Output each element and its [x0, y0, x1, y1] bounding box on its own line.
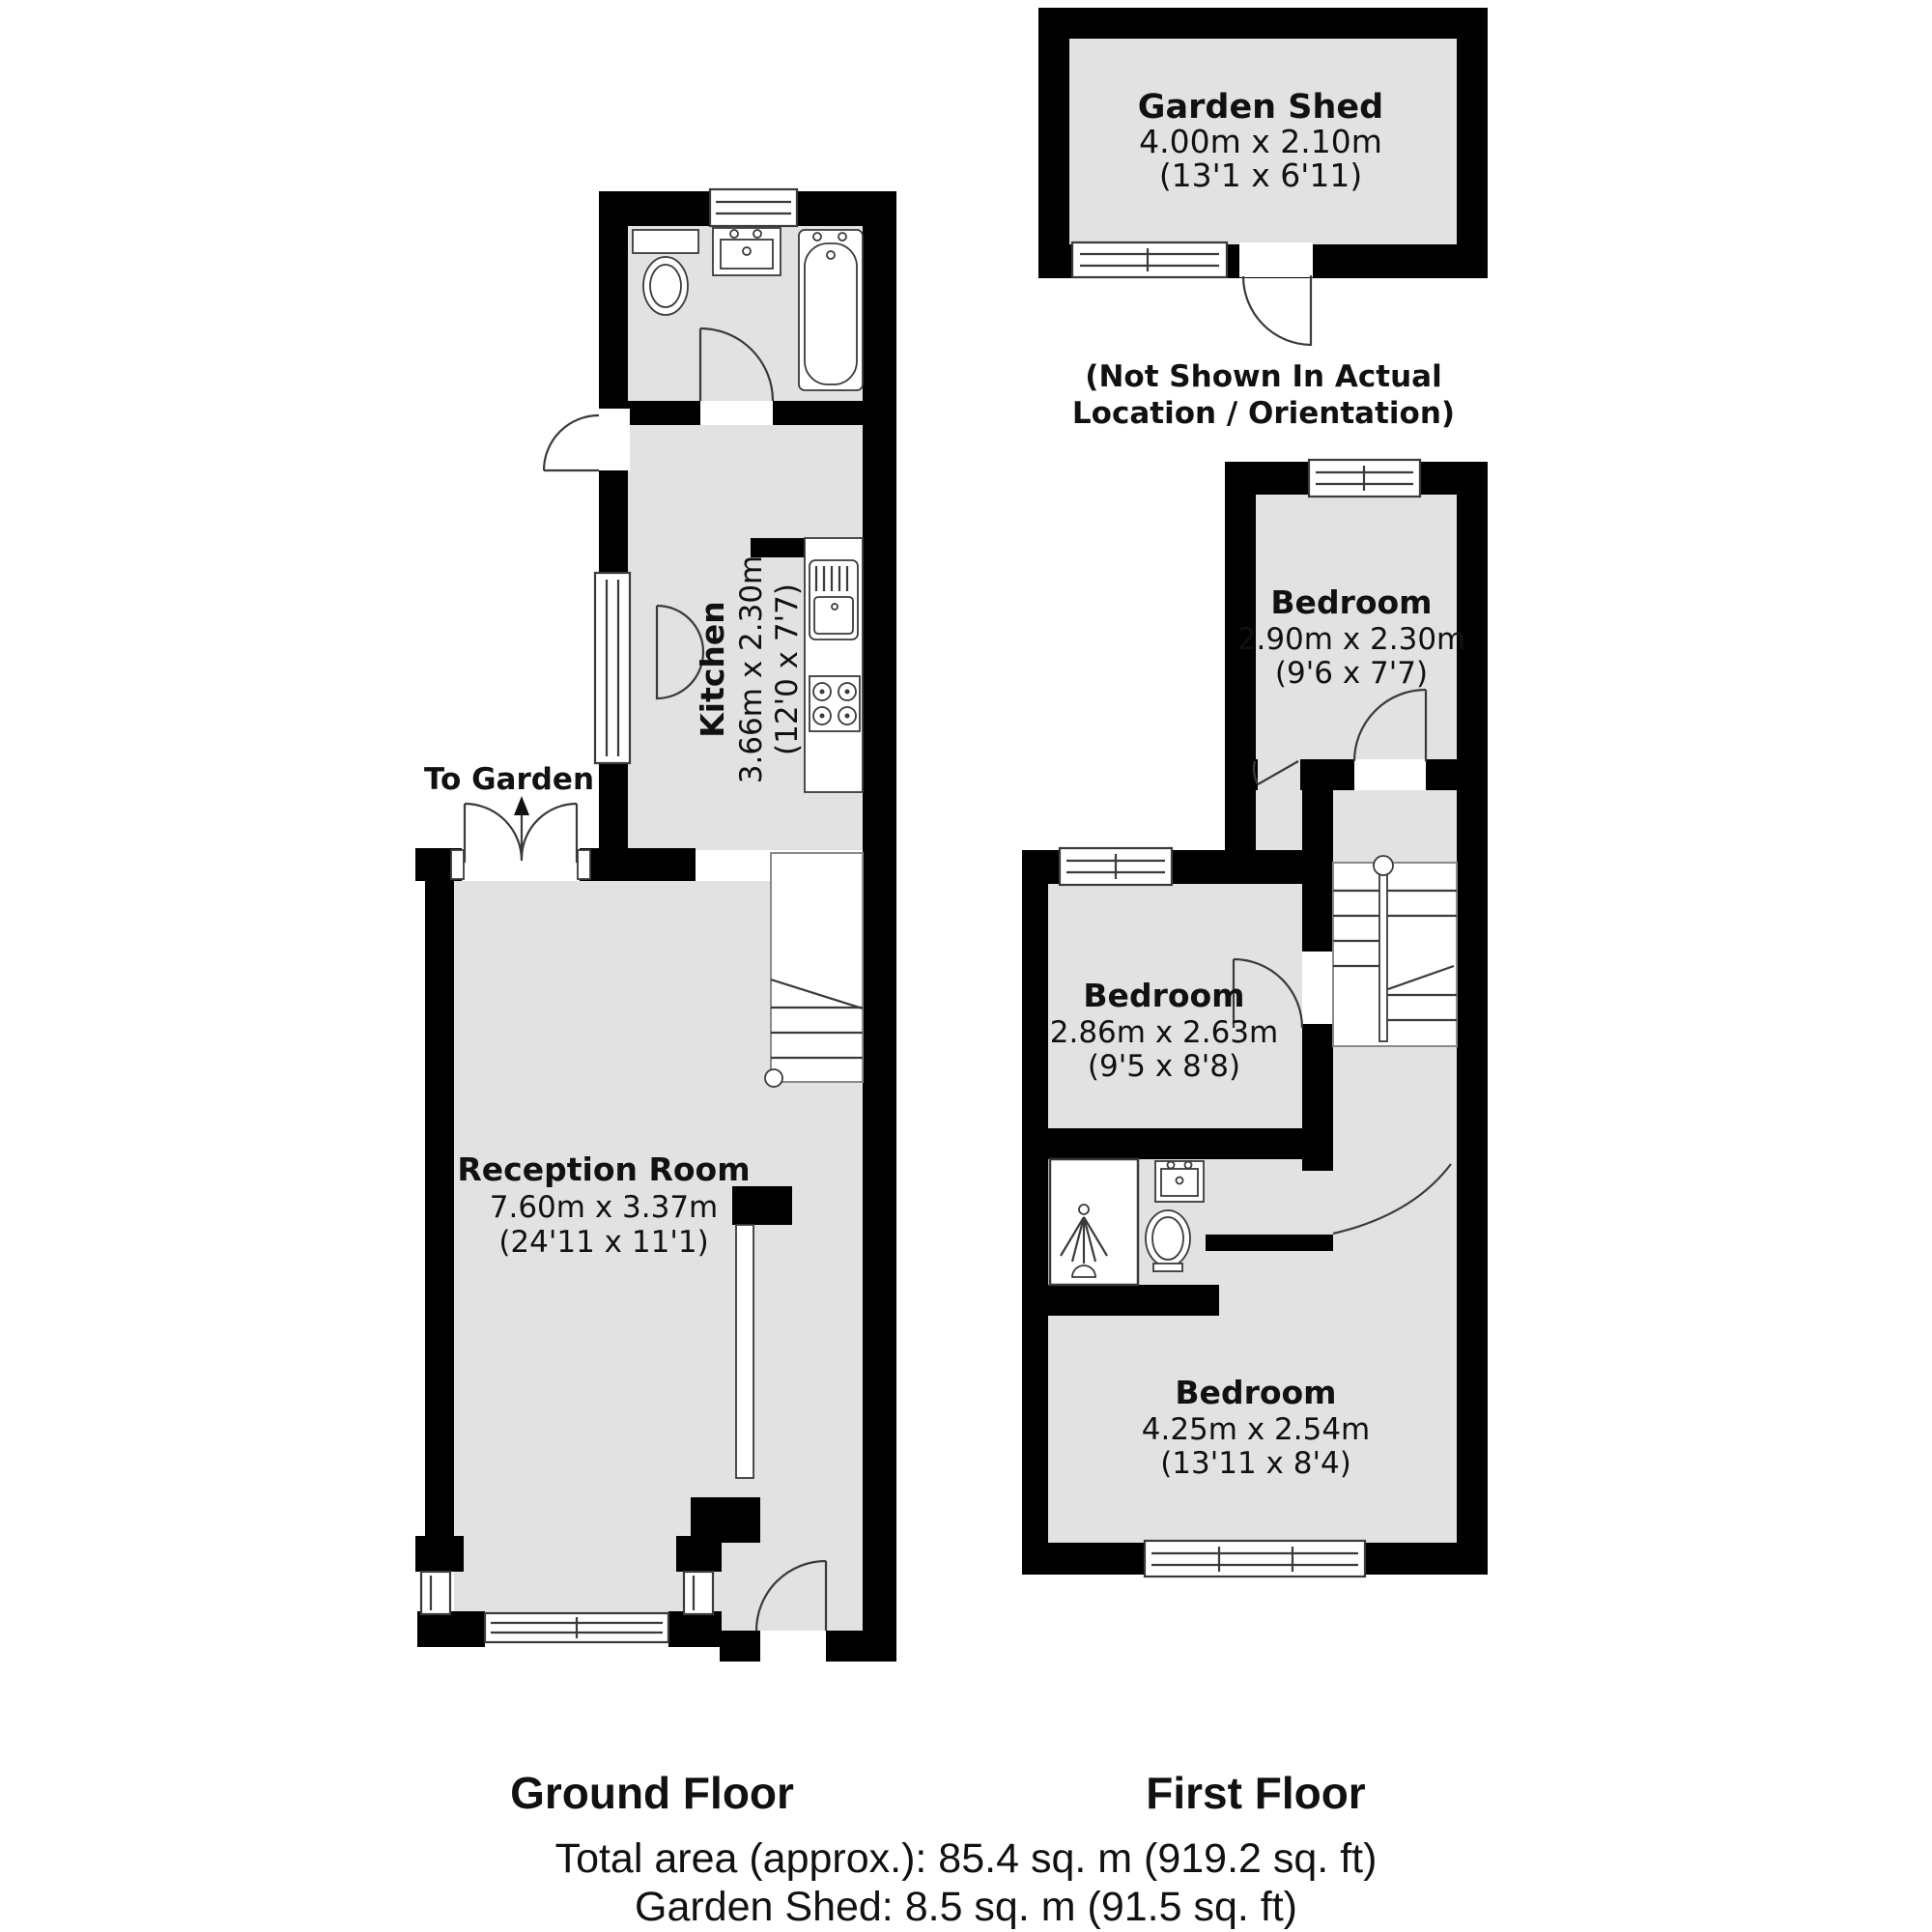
shed-door-icon — [1239, 242, 1313, 346]
footer: Ground Floor First Floor Total area (app… — [510, 1768, 1377, 1930]
shower-icon — [1050, 1159, 1138, 1285]
bedroom-top-dims-imperial: (9'6 x 7'7) — [1275, 656, 1428, 691]
shed-window-icon — [1072, 242, 1227, 277]
to-garden-label: To Garden — [424, 762, 594, 797]
first-floor-plan: Bedroom 2.90m x 2.30m (9'6 x 7'7) Bedroo… — [1022, 460, 1488, 1577]
ground-stairs-icon — [765, 853, 863, 1087]
kitchen-name-label: Kitchen — [694, 601, 731, 738]
bedroom-top-name: Bedroom — [1270, 583, 1432, 621]
bay-window-front-icon — [485, 1613, 668, 1642]
bedroom-bottom-dims-metric: 4.25m x 2.54m — [1142, 1412, 1371, 1447]
reception-dims-imperial: (24'11 x 11'1) — [498, 1225, 708, 1260]
bedroom-bottom-label: Bedroom 4.25m x 2.54m (13'11 x 8'4) — [1142, 1374, 1371, 1481]
floorplan-page: Garden Shed 4.00m x 2.10m (13'1 x 6'11) … — [0, 0, 1932, 1932]
shed-note-line2: Location / Orientation) — [1072, 396, 1455, 431]
total-area-text: Total area (approx.): 85.4 sq. m (919.2 … — [555, 1835, 1378, 1882]
shed-note: (Not Shown In Actual Location / Orientat… — [1072, 359, 1455, 431]
kitchen-sink-icon — [810, 560, 858, 639]
bedroom-bottom-name: Bedroom — [1175, 1374, 1336, 1411]
shed-note-line1: (Not Shown In Actual — [1085, 359, 1441, 394]
bathtub-icon — [799, 230, 863, 390]
bedroom-bottom-dims-imperial: (13'11 x 8'4) — [1160, 1446, 1351, 1481]
bathroom-window-icon — [710, 189, 797, 226]
reception-dims-metric: 7.60m x 3.37m — [490, 1190, 719, 1225]
bathroom-sink-icon — [713, 228, 781, 275]
bay-window-right-icon — [684, 1572, 713, 1614]
first-floor-stairs-icon — [1333, 856, 1457, 1046]
ground-floor-plan: To Garden Kitchen 3.66m x 2.30m (12'0 x … — [415, 189, 896, 1662]
ensuite-sink-icon — [1155, 1161, 1204, 1202]
bay-window-left-icon — [421, 1572, 450, 1614]
bedroom-bottom-window-icon — [1145, 1541, 1365, 1577]
bedroom-top-dims-metric: 2.90m x 2.30m — [1237, 622, 1466, 657]
shed-dims-metric: 4.00m x 2.10m — [1139, 123, 1382, 160]
bedroom-top-window-icon — [1309, 460, 1420, 497]
shed-name-label: Garden Shed — [1138, 88, 1383, 127]
shed-area-text: Garden Shed: 8.5 sq. m (91.5 sq. ft) — [635, 1884, 1297, 1930]
floorplan-drawing: Garden Shed 4.00m x 2.10m (13'1 x 6'11) … — [0, 0, 1932, 1932]
bedroom-middle-window-icon — [1060, 848, 1172, 885]
shed-dims-imperial: (13'1 x 6'11) — [1159, 156, 1362, 194]
kitchen-side-window-icon — [595, 573, 630, 763]
bedroom-middle-dims-imperial: (9'5 x 8'8) — [1088, 1049, 1240, 1084]
first-floor-title: First Floor — [1146, 1768, 1366, 1818]
internal-divider — [736, 1225, 753, 1478]
hob-icon — [810, 676, 860, 731]
kitchen-dims-metric: 3.66m x 2.30m — [734, 555, 769, 784]
garden-shed-plan: Garden Shed 4.00m x 2.10m (13'1 x 6'11) — [1038, 8, 1488, 346]
reception-label: Reception Room 7.60m x 3.37m (24'11 x 11… — [457, 1151, 750, 1260]
side-door-icon — [544, 415, 599, 470]
kitchen-dims-imperial: (12'0 x 7'7) — [770, 583, 805, 755]
reception-name-label: Reception Room — [457, 1151, 750, 1188]
bedroom-middle-name: Bedroom — [1083, 977, 1244, 1014]
ground-floor-title: Ground Floor — [510, 1768, 794, 1818]
bedroom-middle-dims-metric: 2.86m x 2.63m — [1050, 1015, 1279, 1050]
